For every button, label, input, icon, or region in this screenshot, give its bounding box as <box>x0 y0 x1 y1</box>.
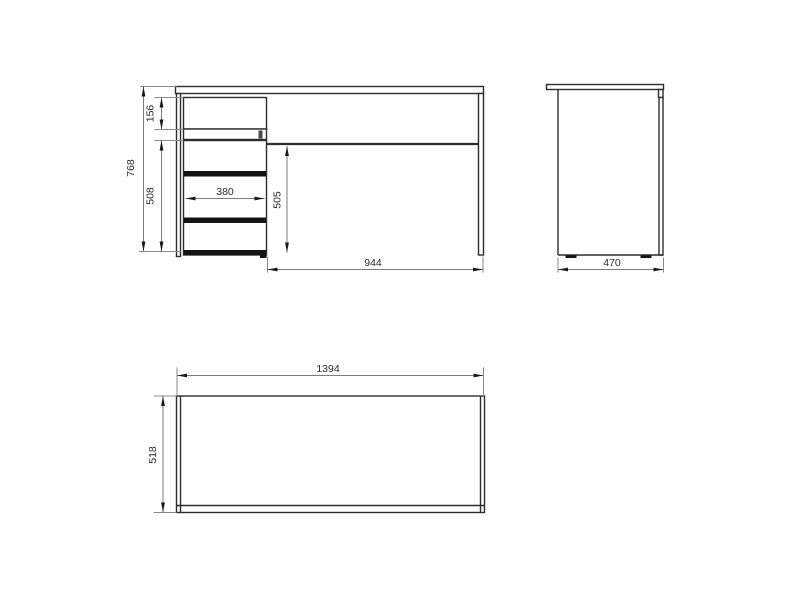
dim-label-depth: 470 <box>603 257 621 269</box>
side-desktop <box>547 85 664 90</box>
drawing-canvas: 768 156 508 380 505 <box>0 0 800 600</box>
dim-label-drawer-section: 508 <box>145 187 157 205</box>
side-back-lip <box>659 90 664 98</box>
front-divider-strip <box>184 129 267 140</box>
dim-label-drawer-width: 380 <box>216 186 234 198</box>
dim-label-knee-height: 505 <box>272 191 284 209</box>
front-drawer-band-1 <box>184 171 266 177</box>
front-pedestal-foot <box>260 255 267 258</box>
technical-drawing: 768 156 508 380 505 <box>0 0 800 600</box>
dim-label-total-height: 768 <box>125 159 137 177</box>
front-desktop <box>176 87 484 94</box>
front-divider-tick <box>259 131 263 139</box>
dim-label-knee-width: 944 <box>364 257 382 269</box>
side-view: 470 <box>547 85 664 273</box>
side-foot-front <box>566 256 577 259</box>
front-right-panel <box>479 94 484 256</box>
dim-knee-space-height: 505 <box>272 146 288 253</box>
front-drawer-band-2 <box>184 218 266 224</box>
dim-label-width: 1394 <box>316 363 340 375</box>
dim-label-top-drawer: 156 <box>145 105 157 123</box>
dim-label-top-depth: 518 <box>147 446 159 464</box>
top-view: 1394 518 <box>147 363 485 513</box>
front-top-drawer <box>184 98 267 130</box>
dim-width: 1394 <box>177 363 484 396</box>
side-back-panel <box>659 98 663 256</box>
dim-top-depth: 518 <box>147 396 177 513</box>
top-desktop-outline <box>177 396 485 513</box>
front-left-panel <box>177 94 181 257</box>
front-plinth-band <box>184 250 266 255</box>
side-foot-back <box>641 256 652 259</box>
dim-depth: 470 <box>558 257 664 273</box>
front-view: 768 156 508 380 505 <box>125 87 484 273</box>
dim-knee-space-width: 944 <box>268 257 484 273</box>
